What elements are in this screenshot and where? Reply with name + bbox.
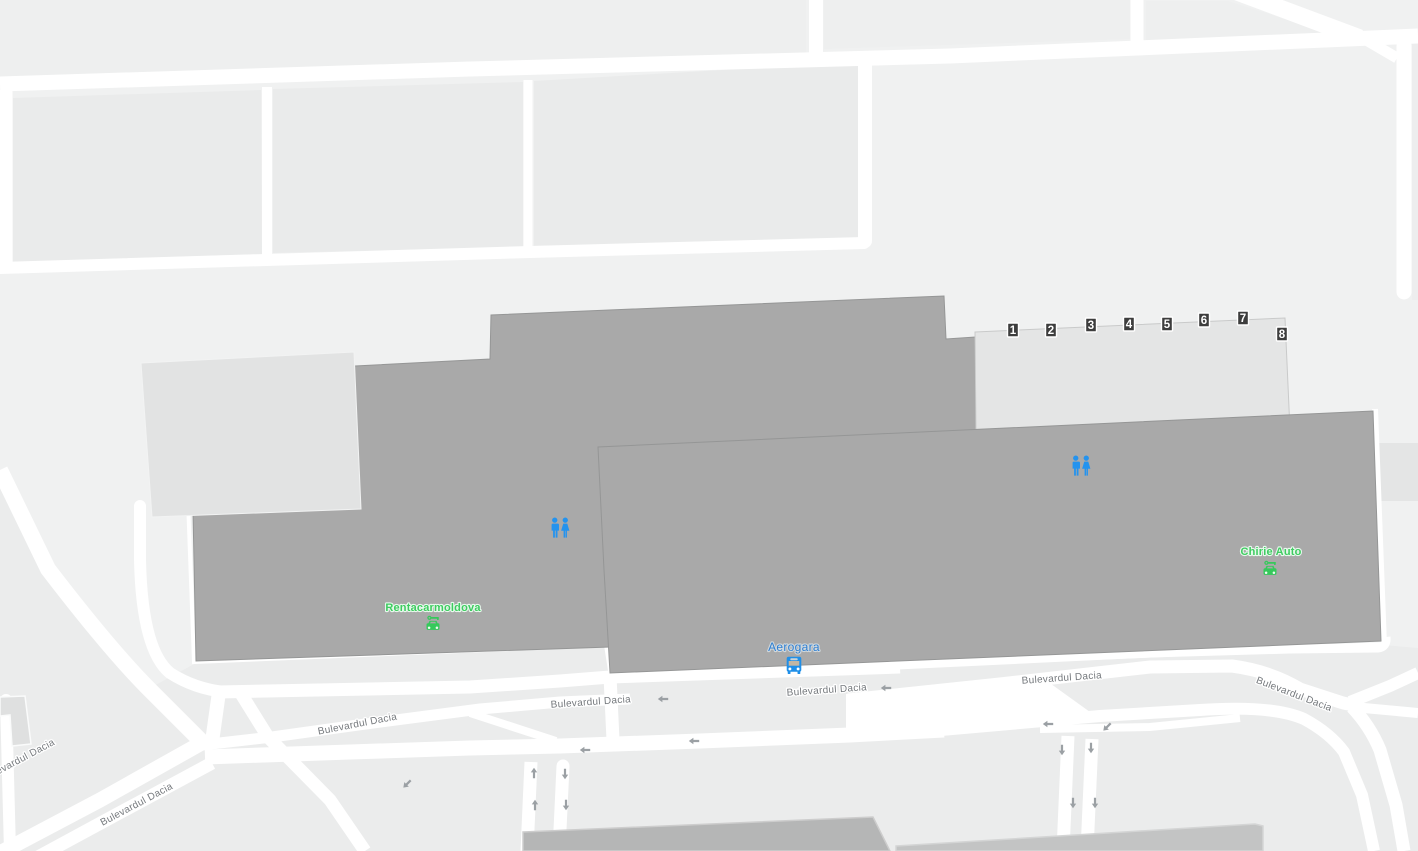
svg-text:8: 8: [1279, 329, 1286, 341]
svg-text:4: 4: [1126, 319, 1133, 331]
svg-text:2: 2: [1048, 325, 1054, 337]
svg-text:6: 6: [1201, 315, 1207, 327]
svg-text:7: 7: [1240, 313, 1246, 325]
svg-text:1: 1: [1010, 325, 1017, 337]
svg-text:3: 3: [1088, 320, 1094, 332]
svg-text:Aerogara: Aerogara: [768, 640, 820, 654]
svg-text:5: 5: [1164, 319, 1171, 331]
svg-text:Rentacarmoldova: Rentacarmoldova: [385, 602, 481, 614]
svg-text:Chirie Auto: Chirie Auto: [1240, 546, 1301, 558]
